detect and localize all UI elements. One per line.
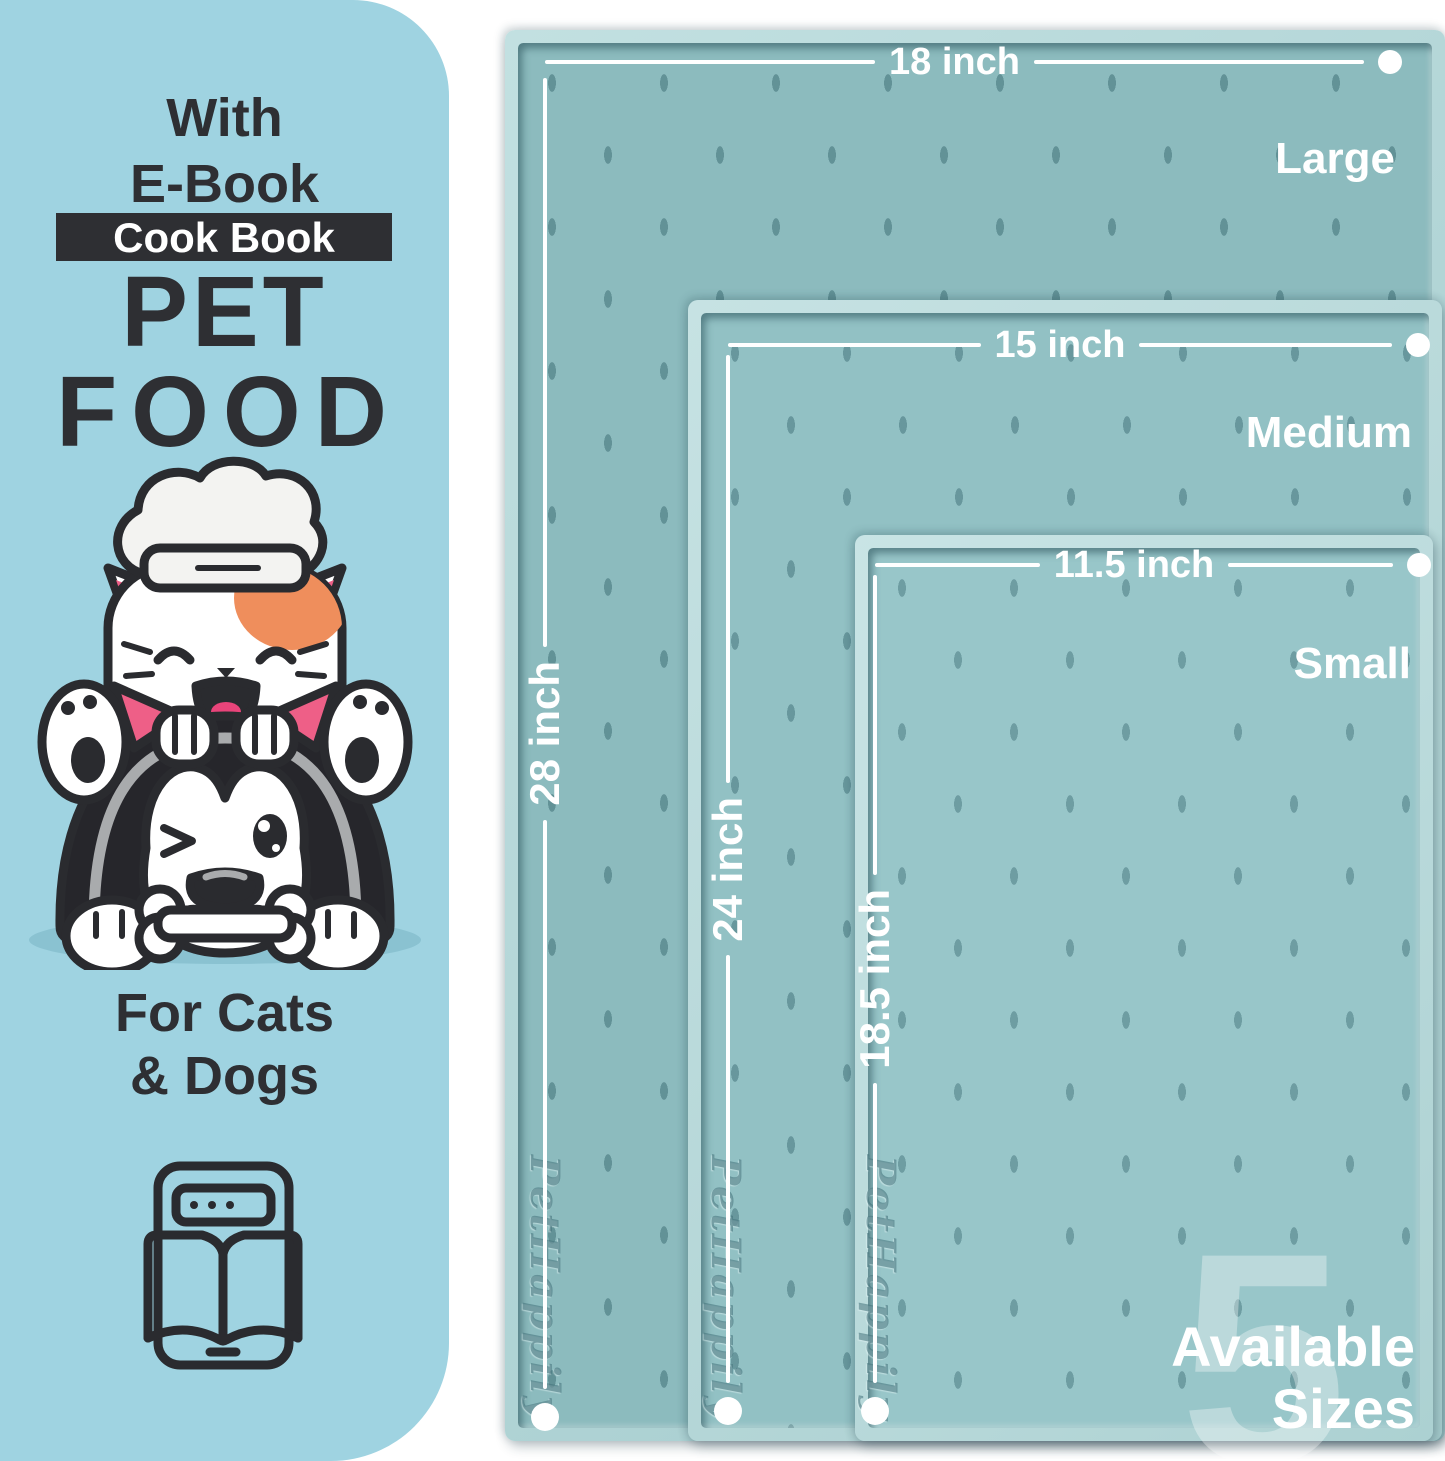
dimension-line-segment (726, 955, 730, 1383)
dimension-endpoint-dot (861, 1397, 889, 1425)
size-label-small: Small (1294, 639, 1411, 689)
height-dimension-label: 18.5 inch (851, 889, 899, 1069)
audience-line1: For Cats (0, 982, 449, 1045)
left-panel: With E-Book Cook Book PET FOOD (0, 0, 449, 1461)
ebook-headline-line2: E-Book (0, 152, 449, 218)
dimension-line-segment (728, 343, 981, 347)
dimension-line-segment (873, 1083, 877, 1383)
width-dimension-label: 18 inch (889, 41, 1020, 84)
dimension-endpoint-dot (1407, 553, 1431, 577)
dimension-line-segment (1228, 563, 1393, 567)
dimension-line-segment (543, 78, 547, 647)
dimension-line-segment (1139, 343, 1392, 347)
cookbook-badge: Cook Book (56, 213, 392, 261)
product-title-line2: FOOD (8, 362, 449, 462)
ebook-headline: With E-Book (0, 86, 449, 218)
height-dimension-label: 28 inch (521, 661, 569, 806)
product-infographic: With E-Book Cook Book PET FOOD (0, 0, 1445, 1461)
height-dimension-line: 18.5 inch (852, 575, 898, 1425)
size-label-large: Large (1275, 134, 1395, 184)
dimension-endpoint-dot (1406, 333, 1430, 357)
mats-stage: PetHappily 18 inch 28 inch Large PetHapp… (449, 0, 1445, 1461)
audience-line2: & Dogs (0, 1045, 449, 1108)
height-dimension-line: 24 inch (705, 355, 751, 1425)
ebook-icon (136, 1158, 311, 1373)
dimension-endpoint-dot (531, 1403, 559, 1431)
width-dimension-label: 15 inch (995, 324, 1126, 367)
width-dimension-label: 11.5 inch (1054, 544, 1215, 587)
height-dimension-line: 28 inch (522, 78, 568, 1431)
dimension-line-segment (726, 355, 730, 783)
available-sizes-text: Available Sizes (1171, 1316, 1415, 1439)
ebook-headline-line1: With (0, 86, 449, 152)
available-sizes-line1: Available (1171, 1316, 1415, 1378)
audience-text: For Cats & Dogs (0, 982, 449, 1107)
dimension-line-segment (1034, 60, 1364, 64)
size-label-medium: Medium (1246, 408, 1412, 458)
width-dimension-line: 11.5 inch (875, 543, 1431, 587)
product-title: PET FOOD (0, 262, 449, 462)
dimension-line-segment (543, 820, 547, 1389)
dimension-line-segment (875, 563, 1040, 567)
height-dimension-label: 24 inch (704, 797, 752, 942)
dimension-endpoint-dot (714, 1397, 742, 1425)
product-title-line1: PET (0, 262, 449, 362)
dimension-line-segment (873, 575, 877, 875)
width-dimension-line: 15 inch (728, 323, 1430, 367)
dimension-line-segment (545, 60, 875, 64)
dimension-endpoint-dot (1378, 50, 1402, 74)
available-sizes-line2: Sizes (1171, 1378, 1415, 1440)
chef-cat-dog-illustration (8, 448, 442, 970)
width-dimension-line: 18 inch (545, 40, 1402, 84)
